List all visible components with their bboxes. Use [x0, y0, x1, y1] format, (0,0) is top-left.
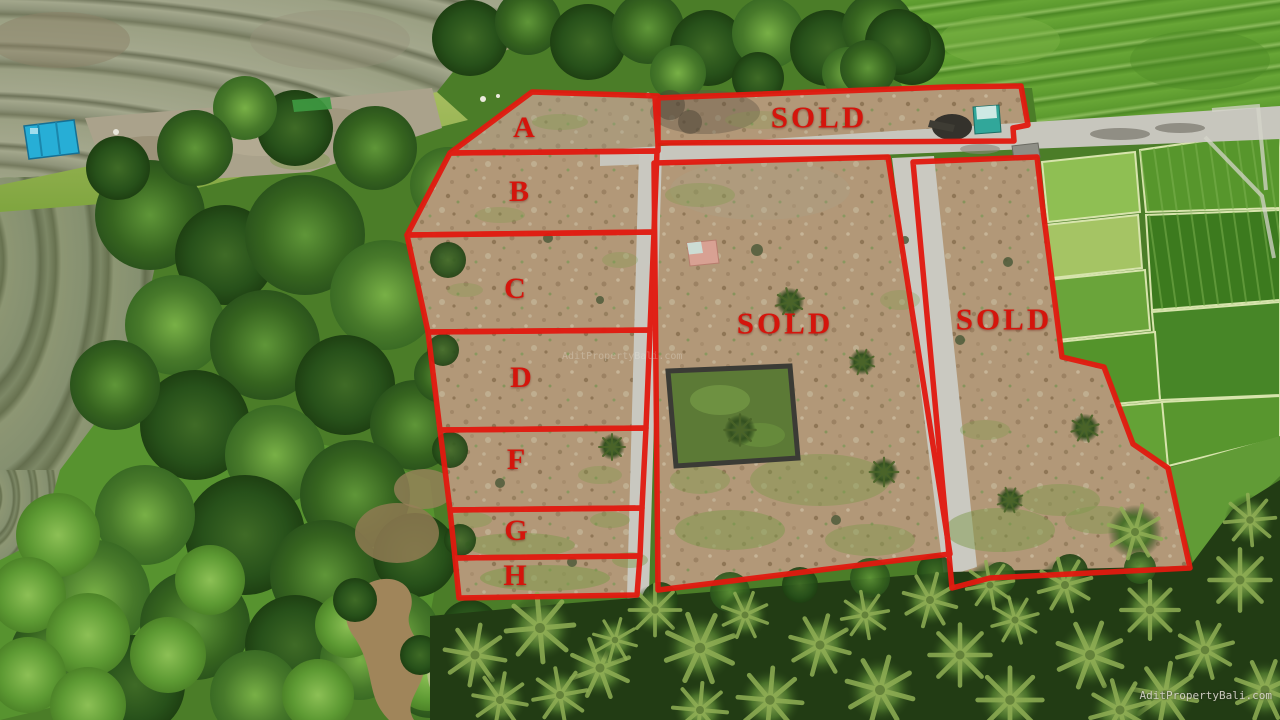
- blue-tarp-hut: [24, 120, 79, 159]
- pink-roof-hut: [687, 240, 719, 266]
- land-plot-aerial-map: A B C D F G H SOLD SOLD SOLD AditPropert…: [0, 0, 1280, 720]
- aerial-photo: [0, 0, 1280, 720]
- walled-garden-enclosure: [668, 366, 798, 466]
